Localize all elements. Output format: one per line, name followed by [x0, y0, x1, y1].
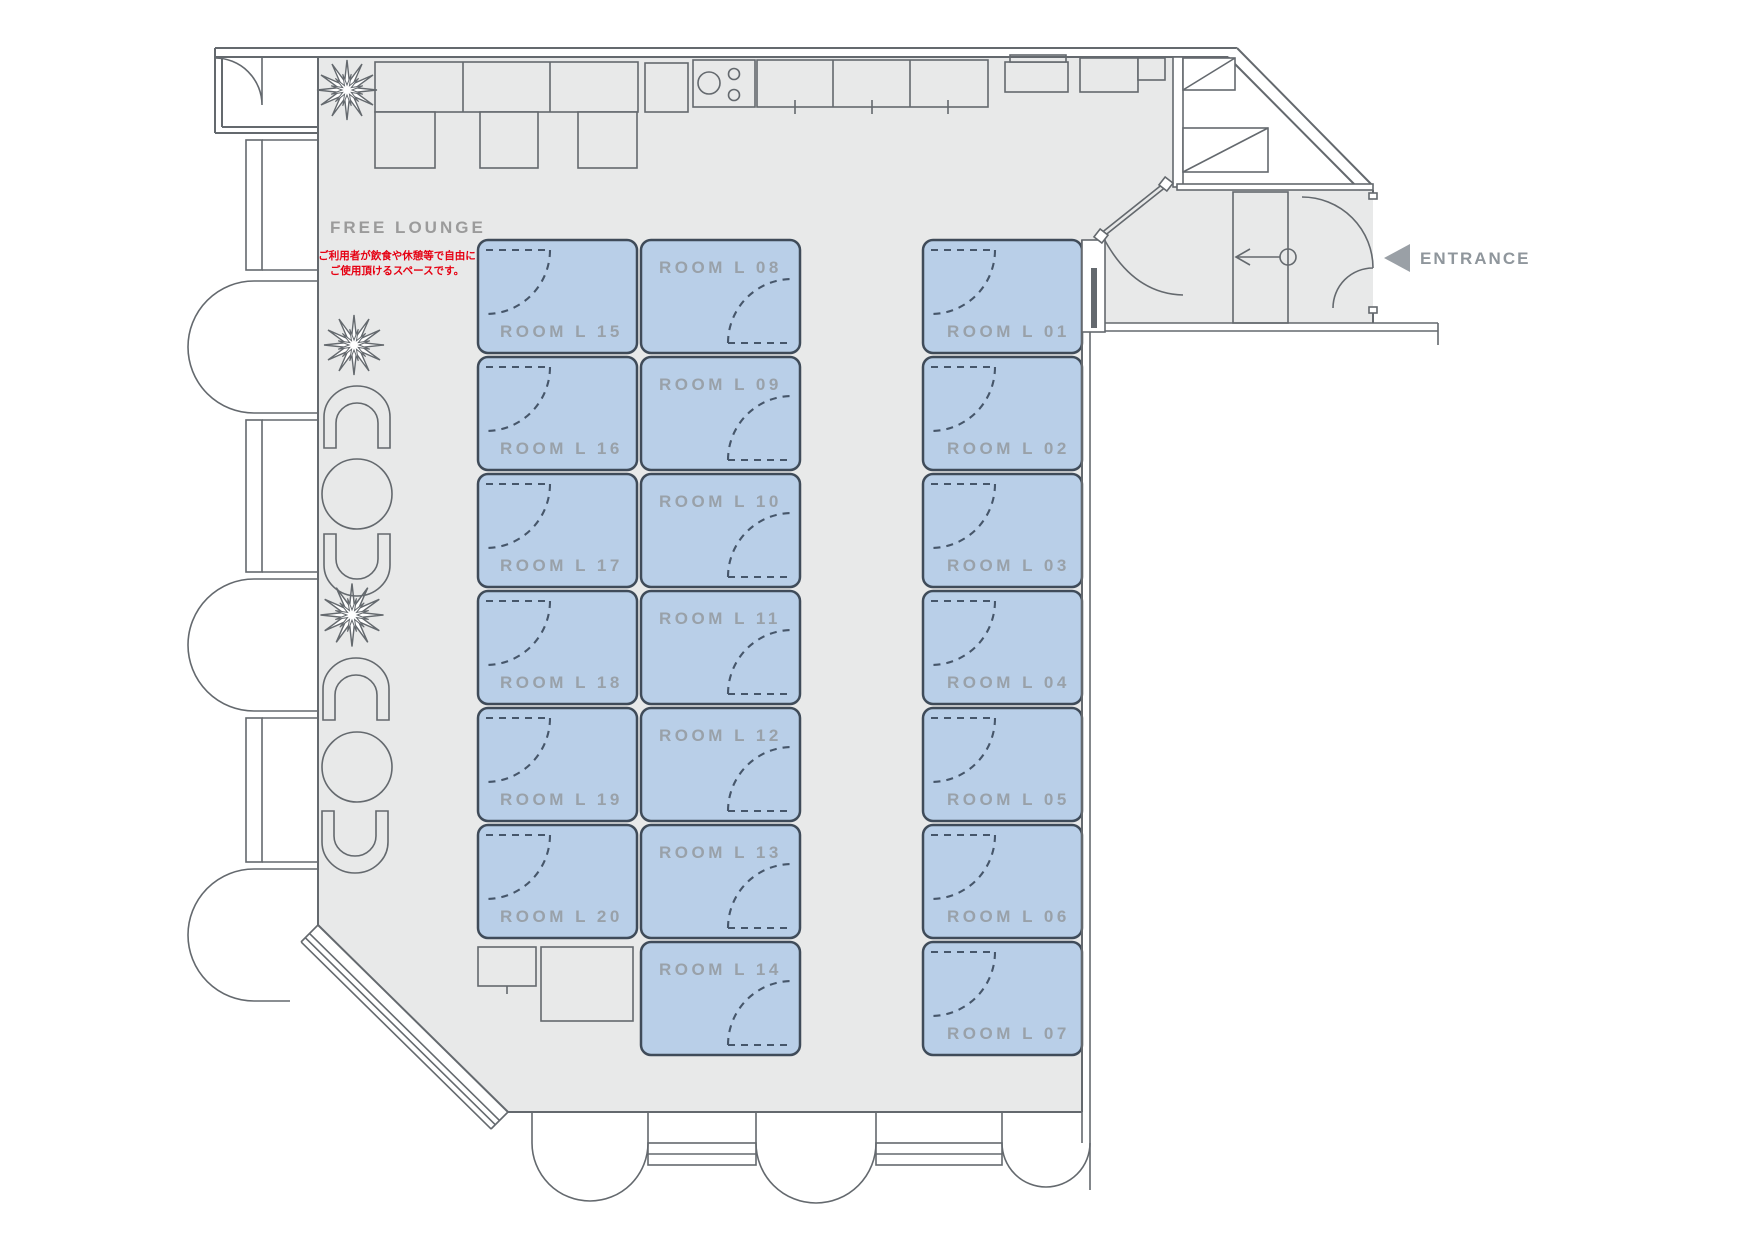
- room-label: ROOM L 03: [947, 556, 1070, 575]
- room-label: ROOM L 07: [947, 1024, 1070, 1043]
- room-L03: ROOM L 03: [923, 474, 1082, 587]
- room-label: ROOM L 19: [500, 790, 623, 809]
- floor-plan: ROOM L 01 ROOM L 02 ROOM L 03 ROOM L 04 …: [0, 0, 1739, 1260]
- room-label: ROOM L 12: [659, 726, 782, 745]
- kitchen-counter: [757, 60, 988, 107]
- room-label: ROOM L 16: [500, 439, 623, 458]
- door-leaf: [1091, 268, 1097, 328]
- bay-window: [1002, 1143, 1090, 1187]
- lounge-note-line2: ご使用頂けるスペースです。: [330, 264, 464, 277]
- bench-chair: [480, 112, 538, 168]
- room-L13: ROOM L 13: [641, 825, 800, 938]
- room-label: ROOM L 15: [500, 322, 623, 341]
- bay-window: [188, 281, 254, 413]
- room-L20: ROOM L 20: [478, 825, 637, 938]
- room-label: ROOM L 05: [947, 790, 1070, 809]
- room-label: ROOM L 13: [659, 843, 782, 862]
- bay-window: [756, 1143, 876, 1203]
- bench-chair: [578, 112, 637, 168]
- counter-end: [645, 63, 688, 112]
- door-jamb: [1369, 193, 1377, 199]
- lounge-note-line1: ご利用者が飲食や休憩等で自由に: [318, 249, 476, 262]
- entrance-arrow-icon: [1384, 244, 1410, 272]
- floor-area: [318, 57, 1373, 1112]
- room-L14: ROOM L 14: [641, 942, 800, 1055]
- room-L09: ROOM L 09: [641, 357, 800, 470]
- appliance: [1005, 62, 1068, 92]
- free-lounge-title: FREE LOUNGE: [330, 218, 486, 237]
- bay-window: [188, 869, 254, 1001]
- room-L17: ROOM L 17: [478, 474, 637, 587]
- counter-right-box: [1138, 58, 1165, 80]
- window: [246, 140, 262, 270]
- room-label: ROOM L 02: [947, 439, 1070, 458]
- bay-window: [188, 579, 254, 711]
- room-label: ROOM L 09: [659, 375, 782, 394]
- room-L18: ROOM L 18: [478, 591, 637, 704]
- room-L02: ROOM L 02: [923, 357, 1082, 470]
- room-label: ROOM L 20: [500, 907, 623, 926]
- room-label: ROOM L 10: [659, 492, 782, 511]
- bench-row: [375, 62, 638, 112]
- room-L15: ROOM L 15: [478, 240, 637, 353]
- room-label: ROOM L 04: [947, 673, 1070, 692]
- room-label: ROOM L 14: [659, 960, 782, 979]
- entrance-label: ENTRANCE: [1420, 249, 1530, 268]
- wall-band: [1173, 57, 1183, 187]
- window: [246, 420, 262, 572]
- door-jamb: [1369, 307, 1377, 313]
- room-label: ROOM L 18: [500, 673, 623, 692]
- room-label: ROOM L 11: [659, 609, 781, 628]
- bench-chair: [375, 112, 435, 168]
- vestibule-top-wall: [1177, 184, 1373, 190]
- room-L10: ROOM L 10: [641, 474, 800, 587]
- cooktop: [693, 60, 755, 107]
- room-label: ROOM L 06: [947, 907, 1070, 926]
- counter-right: [1080, 58, 1138, 92]
- bay-window: [532, 1143, 648, 1201]
- room-L08: ROOM L 08: [641, 240, 800, 353]
- room-L05: ROOM L 05: [923, 708, 1082, 821]
- room-L11: ROOM L 11: [641, 591, 800, 704]
- room-L07: ROOM L 07: [923, 942, 1082, 1055]
- room-label: ROOM L 08: [659, 258, 782, 277]
- room-L04: ROOM L 04: [923, 591, 1082, 704]
- floor-plan-svg: ROOM L 01 ROOM L 02 ROOM L 03 ROOM L 04 …: [0, 0, 1739, 1260]
- room-L01: ROOM L 01: [923, 240, 1082, 353]
- room-label: ROOM L 01: [947, 322, 1070, 341]
- room-L19: ROOM L 19: [478, 708, 637, 821]
- room-L06: ROOM L 06: [923, 825, 1082, 938]
- room-L16: ROOM L 16: [478, 357, 637, 470]
- room-label: ROOM L 17: [500, 556, 623, 575]
- window: [246, 718, 262, 862]
- room-L12: ROOM L 12: [641, 708, 800, 821]
